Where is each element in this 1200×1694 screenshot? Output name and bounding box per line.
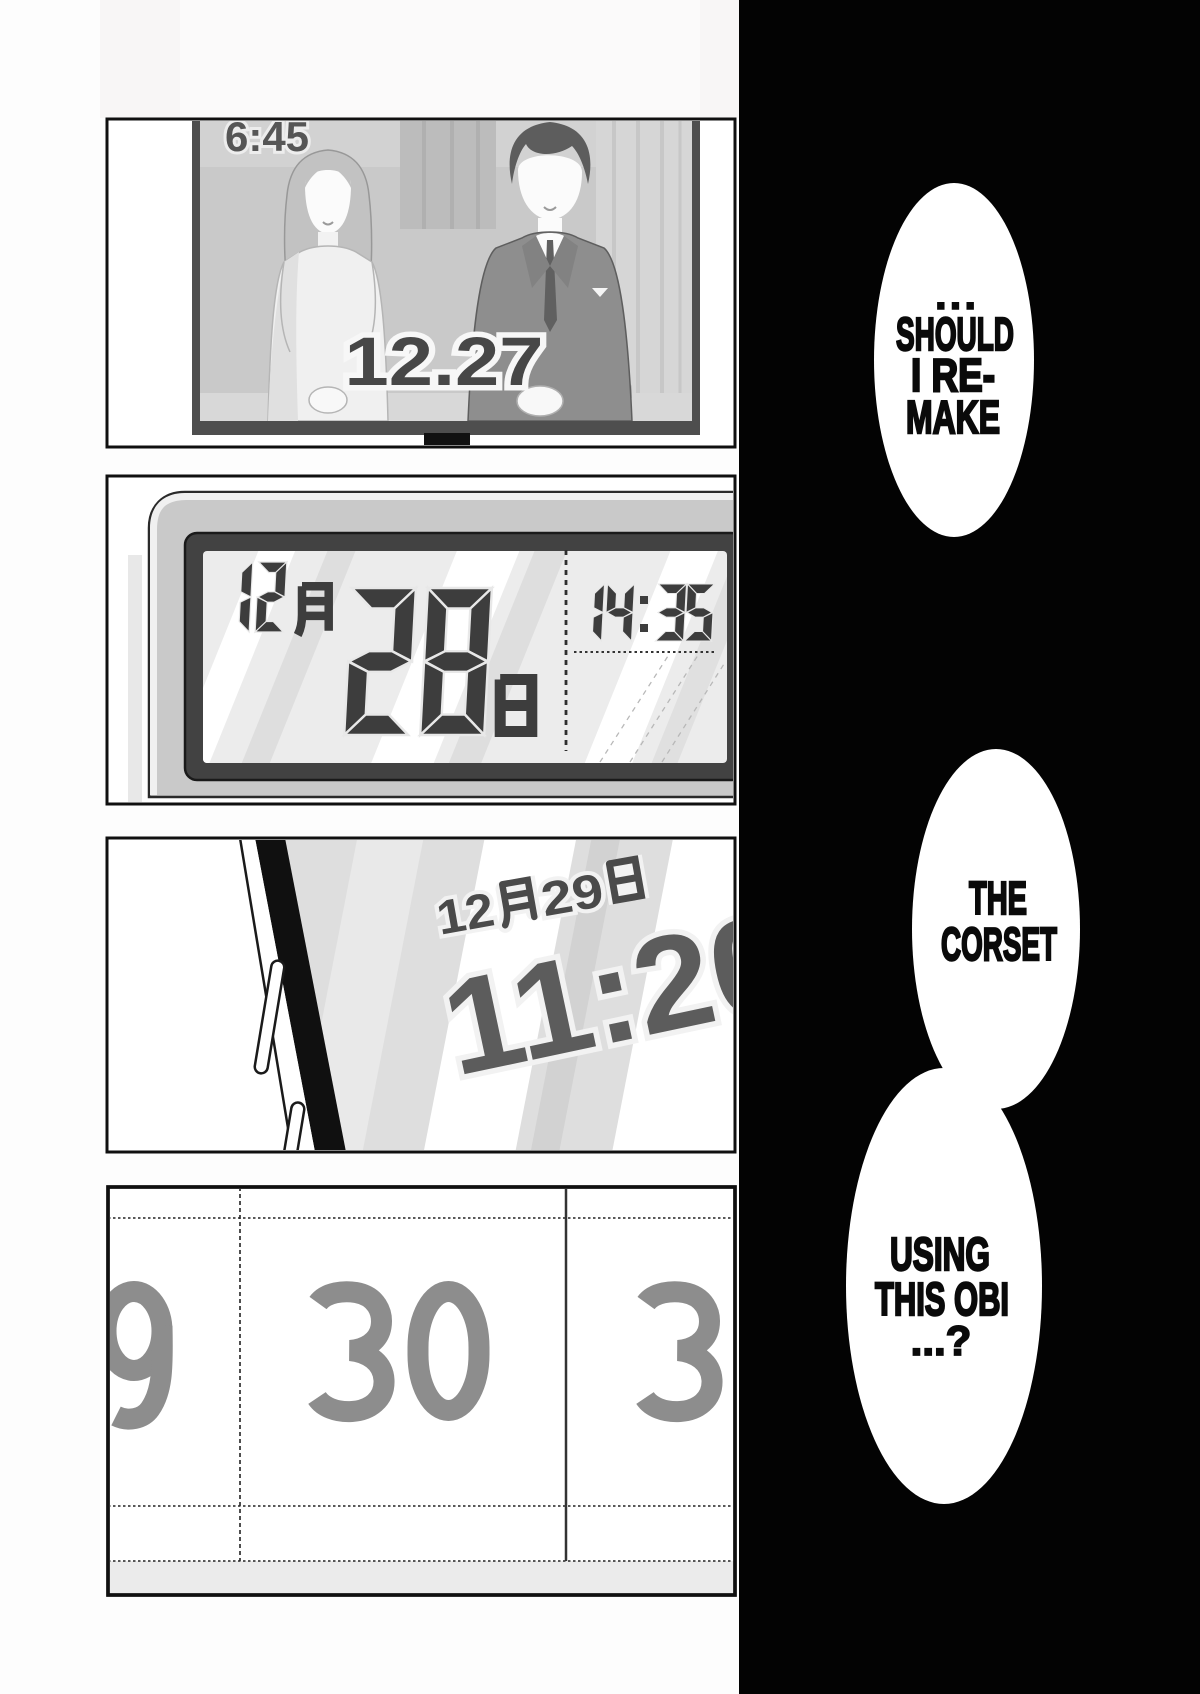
- svg-text:12: 12: [433, 883, 498, 945]
- svg-text:CORSET: CORSET: [941, 918, 1057, 970]
- svg-text:...?: ...?: [911, 1317, 972, 1364]
- svg-text:THE: THE: [969, 872, 1027, 924]
- svg-text:12.27: 12.27: [345, 323, 544, 400]
- svg-text:29: 29: [537, 864, 607, 927]
- svg-text:MAKE: MAKE: [906, 391, 1000, 443]
